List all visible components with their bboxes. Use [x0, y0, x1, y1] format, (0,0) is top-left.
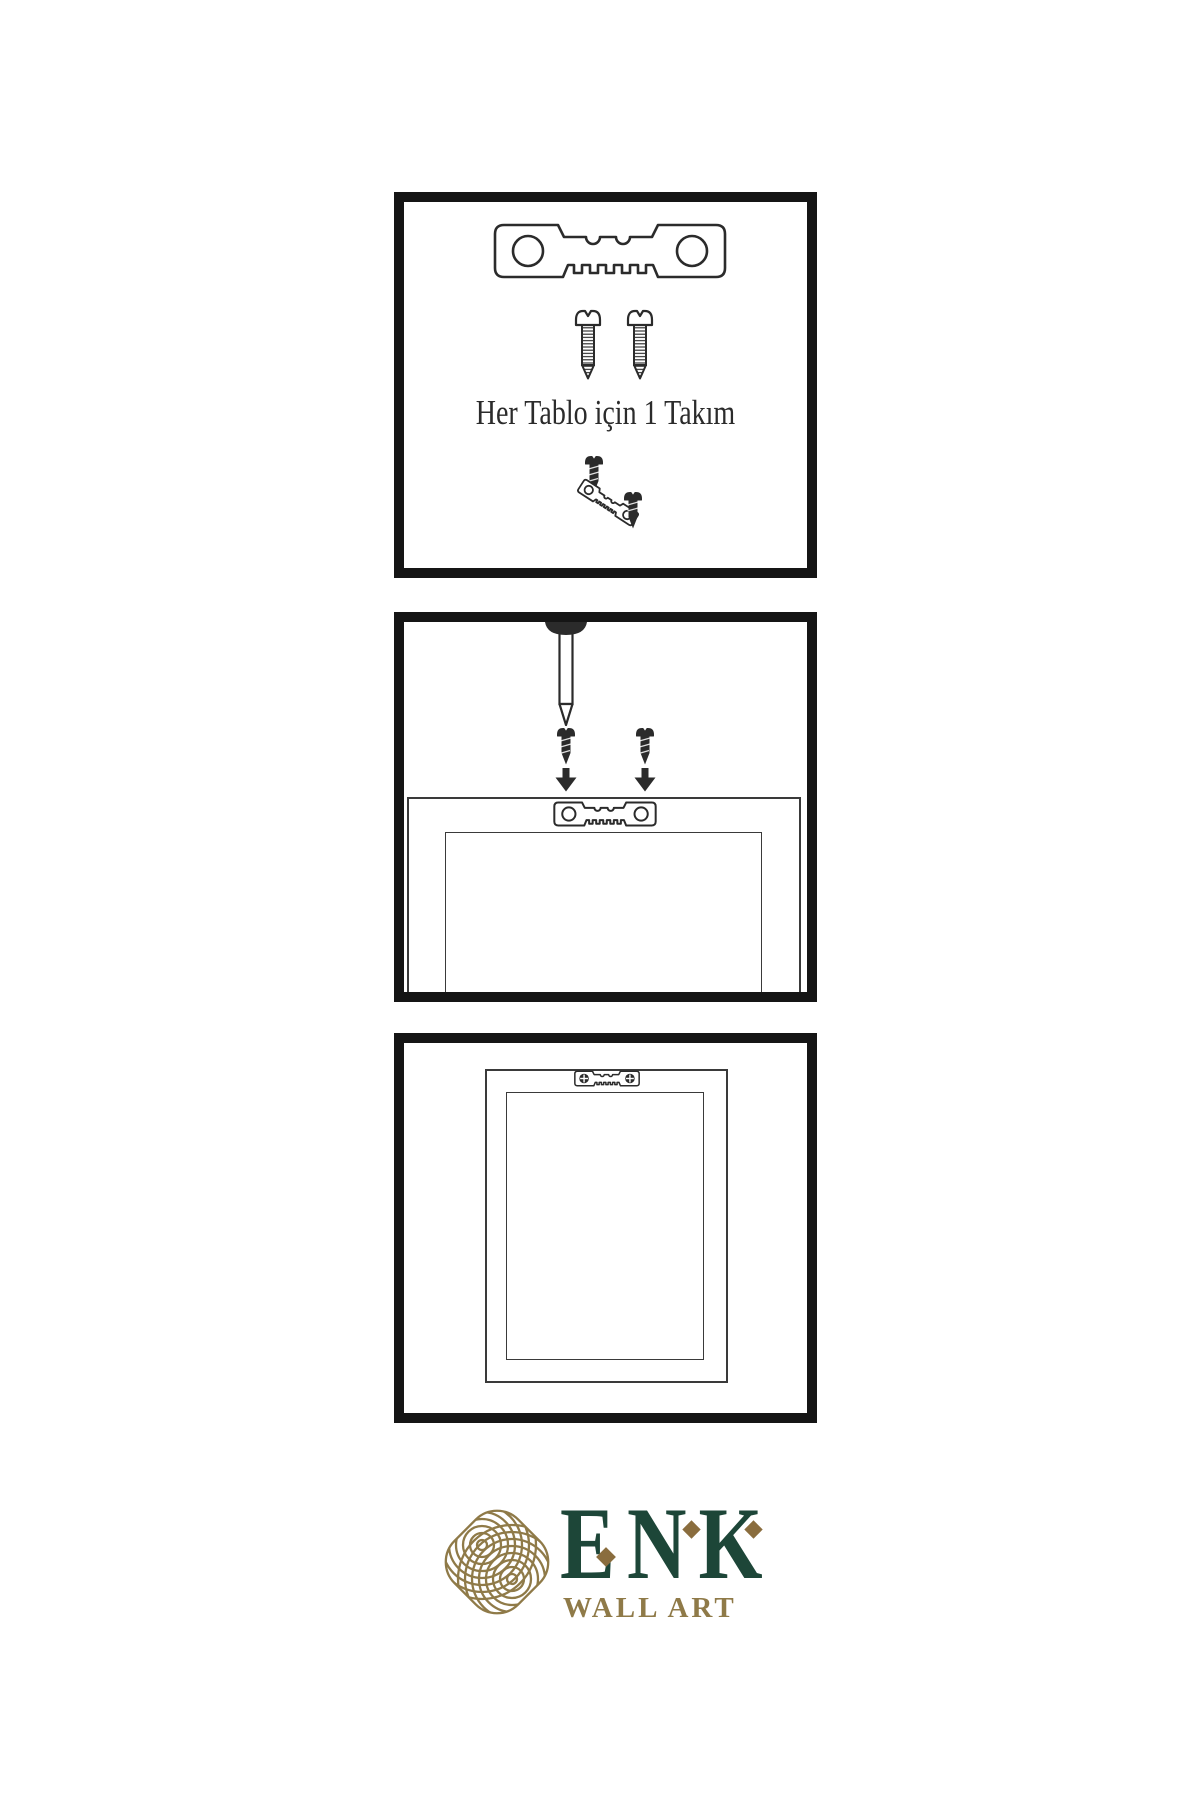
step-3-panel: [394, 1033, 817, 1423]
screw-head-icon: [579, 1074, 589, 1084]
down-arrow-icon: [555, 768, 577, 792]
brand-letter: N: [627, 1487, 699, 1601]
nail-in-wall-icon: [544, 622, 588, 728]
frame-back-inner-icon: [445, 832, 762, 1002]
brand-name: ENK: [560, 1493, 775, 1595]
screw-icon: [573, 307, 603, 381]
screws-into-hanger-icon: [575, 454, 655, 554]
screw-head-icon: [625, 1074, 635, 1084]
dark-screw-icon: [623, 490, 643, 530]
mounted-sawtooth-hanger-icon: [574, 1070, 640, 1087]
infinity-knot-icon: [438, 1497, 556, 1627]
screw-icon: [625, 307, 655, 381]
dark-screw-icon: [635, 726, 655, 766]
step-caption: Her Tablo için 1 Takım: [444, 393, 766, 433]
sawtooth-hanger-icon: [492, 222, 728, 280]
brand-logotype: ENK: [560, 1493, 800, 1595]
step-1-panel: Her Tablo için 1 Takım: [394, 192, 817, 578]
brand-letter: K: [698, 1487, 774, 1601]
sawtooth-hanger-on-frame-icon: [553, 801, 657, 827]
brand-subtitle: WALL ART: [563, 1592, 783, 1625]
brand-letter: E: [560, 1487, 627, 1601]
step-2-panel: [394, 612, 817, 1002]
down-arrow-icon: [634, 768, 656, 792]
frame-front-inner-icon: [506, 1092, 704, 1360]
dark-screw-icon: [556, 726, 576, 766]
